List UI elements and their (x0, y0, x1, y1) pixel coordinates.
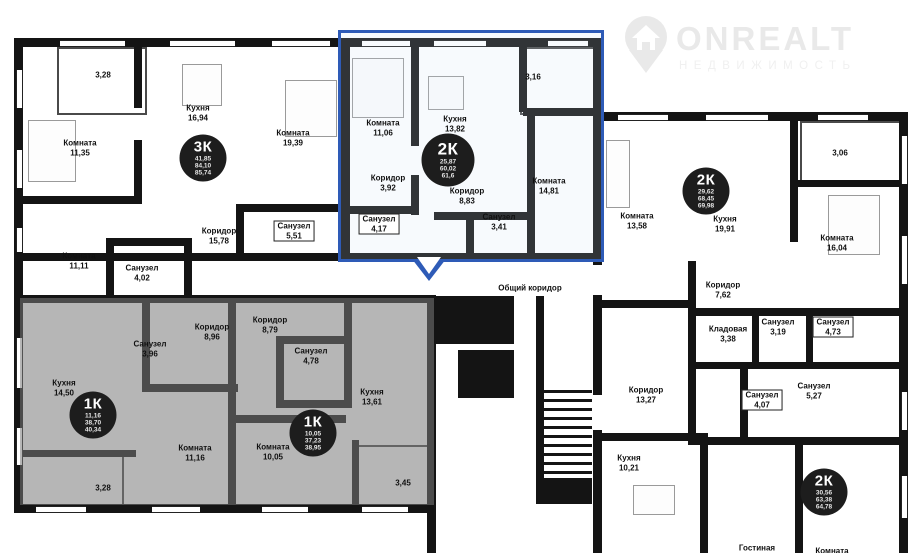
window (272, 40, 330, 47)
l1k-balcony-label: 3,28 (95, 483, 111, 493)
sel2k-room2-label: Комната14,81 (532, 177, 565, 196)
a3k-kitchen-label: Кухня16,94 (186, 104, 209, 123)
r2k-balcony-label: 3,06 (832, 148, 848, 158)
wall (536, 296, 544, 504)
l1k-bath-label: Санузел3,96 (134, 340, 167, 359)
b2k-living-label: Гостиная (739, 543, 775, 553)
a3k-corridor-label: Коридор15,78 (202, 227, 236, 246)
m1k-corridor-label: Коридор8,79 (253, 316, 287, 335)
apartment-badge-2k-bottom[interactable]: 2К 30,56 63,38 64,78 (801, 469, 848, 516)
a3k-room3-label: Комната11,11 (62, 252, 95, 271)
apartment-badge-2k-selected[interactable]: 2К 25,87 60,02 61,6 (422, 134, 475, 187)
r2k-room1-label: Комната13,58 (620, 212, 653, 231)
selection-pointer-inner (417, 257, 441, 274)
l1k-room1-label: Комната11,16 (178, 444, 211, 463)
a3k-room1-label: Комната11,35 (63, 139, 96, 158)
wall (688, 308, 900, 316)
sel2k-corridor2-label: Коридор8,83 (450, 187, 484, 206)
elevator-shaft (434, 296, 514, 344)
onrealt-logo: ONREALT НЕДВИЖИМОСТЬ (618, 12, 904, 79)
floorplan-canvas: 3,28 Комната11,35 Кухня16,94 Комната19,3… (0, 0, 913, 553)
staircase (544, 390, 592, 478)
elevator-shaft (458, 350, 514, 398)
a3k-room2-label: Комната19,39 (276, 129, 309, 148)
furniture (633, 485, 675, 515)
m1k-room1-label: Комната10,05 (256, 443, 289, 462)
corridor13-label: Коридор13,27 (629, 386, 663, 405)
apartment-badge-1k-left[interactable]: 1К 11,16 38,70 40,34 (70, 392, 117, 439)
map-pin-house-icon (625, 16, 667, 73)
apartment-badge-2k-right[interactable]: 2К 29,62 68,45 69,98 (683, 168, 730, 215)
r2k-bath2-label: Санузел4,73 (813, 317, 854, 338)
r2k-storage-label: Кладовая3,38 (709, 325, 747, 344)
l1k-corridor-label: Коридор8,96 (195, 323, 229, 342)
wall (236, 204, 244, 261)
a3k-bath2-label: Санузел4,02 (126, 264, 159, 283)
wall (106, 238, 192, 246)
logo-tagline-text: НЕДВИЖИМОСТЬ (679, 60, 857, 72)
sel2k-bath2-label: Санузел3,41 (483, 213, 516, 232)
apartment-badge-1k-middle[interactable]: 1К 10,05 37,23 38,95 (290, 410, 337, 457)
window (706, 114, 768, 121)
sel2k-corridor1-label: Коридор3,92 (371, 174, 405, 193)
wall (688, 261, 696, 441)
l1k-kitchen-label: Кухня14,50 (52, 379, 75, 398)
wall (134, 46, 142, 108)
window (60, 40, 125, 47)
window (901, 476, 908, 518)
window (901, 136, 908, 184)
elevator-shaft (544, 478, 592, 504)
wall (798, 180, 900, 187)
sel2k-bath1-label: Санузел4,17 (359, 214, 400, 235)
window (16, 228, 23, 252)
wall (700, 433, 708, 553)
r2k-bath1-label: Санузел3,19 (762, 318, 795, 337)
window (16, 150, 23, 188)
balcony-outline (800, 121, 902, 185)
window (818, 114, 868, 121)
window (16, 70, 23, 108)
r2k-kitchen-label: Кухня19,91 (713, 215, 736, 234)
b2k-kitchen-label: Кухня10,21 (617, 454, 640, 473)
wall (236, 204, 343, 212)
wall (688, 437, 900, 445)
wall (106, 238, 114, 298)
sel2k-room1-label: Комната11,06 (366, 119, 399, 138)
furniture (182, 64, 222, 106)
wall (601, 300, 689, 308)
apartment-badge-3k[interactable]: 3К 41,85 84,10 85,74 (180, 135, 227, 182)
wall (20, 196, 138, 204)
b2k-bath2-label: Санузел5,27 (798, 382, 831, 401)
wall (593, 295, 602, 395)
window (901, 236, 908, 284)
logo-brand-text: ONREALT (676, 20, 854, 57)
sel2k-balcony-label: 3,16 (525, 72, 541, 82)
wall (688, 362, 900, 369)
wall (184, 238, 192, 298)
m1k-kitchen-label: Кухня13,61 (360, 388, 383, 407)
furniture (606, 140, 630, 208)
b2k-bath1-label: Санузел4,07 (742, 390, 783, 411)
a3k-bath1-label: Санузел5,51 (274, 221, 315, 242)
b2k-room-label: Комната (815, 546, 848, 553)
window (36, 506, 86, 513)
window (618, 114, 668, 121)
m1k-balcony-label: 3,45 (395, 478, 411, 488)
m1k-bath-label: Санузел4,78 (295, 347, 328, 366)
shared-corridor-label: Общий коридор (498, 283, 561, 293)
window (262, 506, 308, 513)
r2k-corridor-label: Коридор7,62 (706, 281, 740, 300)
window (152, 506, 200, 513)
window (362, 506, 408, 513)
window (901, 392, 908, 430)
r2k-room2-label: Комната16,04 (820, 234, 853, 253)
sel2k-kitchen-label: Кухня13,82 (443, 115, 466, 134)
window (170, 40, 235, 47)
wall (752, 316, 759, 362)
wall (790, 112, 798, 242)
a3k-balcony-label: 3,28 (95, 70, 111, 80)
wall (134, 140, 142, 204)
wall (593, 430, 602, 553)
